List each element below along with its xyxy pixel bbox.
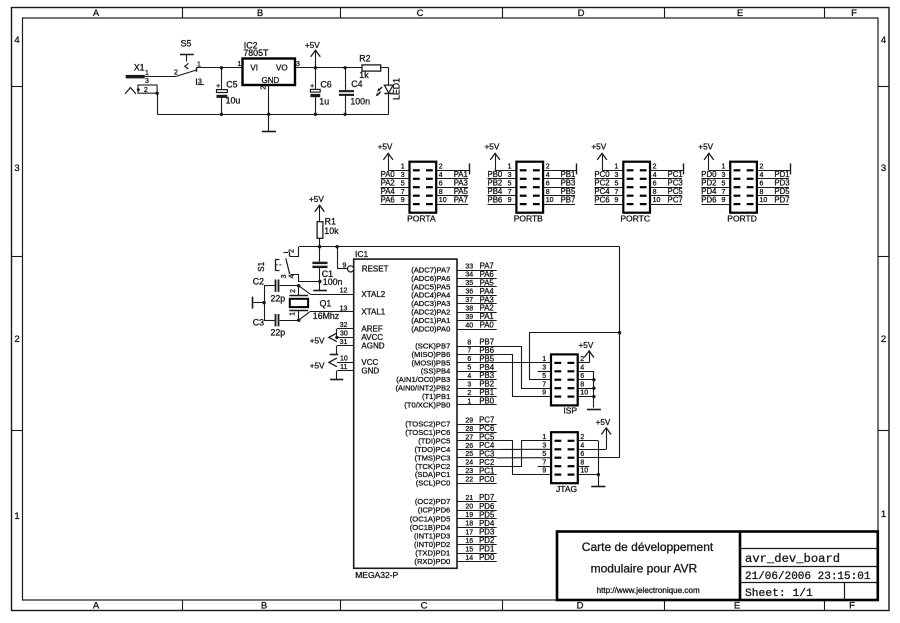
svg-text:2: 2	[14, 334, 19, 345]
svg-text:6: 6	[546, 180, 550, 187]
svg-text:PB7: PB7	[561, 196, 576, 205]
svg-text:5: 5	[467, 365, 471, 372]
svg-text:6: 6	[653, 180, 657, 187]
svg-text:7: 7	[508, 189, 512, 196]
svg-text:LED1: LED1	[392, 78, 402, 100]
svg-text:8: 8	[760, 189, 764, 196]
svg-text:F: F	[849, 601, 855, 612]
svg-text:10k: 10k	[324, 226, 339, 236]
svg-text:+5V: +5V	[485, 143, 500, 152]
svg-text:5: 5	[721, 180, 725, 187]
svg-text:4: 4	[439, 172, 443, 179]
svg-text:C6: C6	[320, 80, 331, 90]
svg-text:+5V: +5V	[579, 341, 594, 350]
svg-text:1: 1	[881, 509, 886, 520]
svg-text:3: 3	[542, 364, 546, 371]
svg-text:XTAL1: XTAL1	[361, 308, 385, 317]
svg-text:A: A	[93, 8, 100, 19]
svg-text:100n: 100n	[350, 97, 370, 107]
svg-text:2: 2	[546, 163, 550, 170]
svg-text:34: 34	[465, 272, 473, 279]
svg-text:21: 21	[465, 495, 473, 502]
svg-text:40: 40	[465, 322, 473, 329]
svg-text:21/06/2006 23:15:01: 21/06/2006 23:15:01	[745, 571, 871, 583]
svg-text:C: C	[417, 8, 424, 19]
svg-text:7805T: 7805T	[243, 48, 269, 58]
svg-text:Q1: Q1	[320, 299, 332, 309]
svg-text:10: 10	[580, 468, 588, 475]
svg-text:9: 9	[615, 197, 619, 204]
svg-text:11: 11	[340, 364, 347, 371]
svg-text:GND: GND	[262, 76, 280, 85]
svg-text:+5V: +5V	[310, 361, 325, 370]
svg-text:+: +	[216, 83, 220, 90]
svg-text:22p: 22p	[271, 294, 286, 304]
svg-text:modulaire pour AVR: modulaire pour AVR	[591, 561, 698, 575]
svg-text:4: 4	[881, 35, 886, 46]
svg-text:1: 1	[467, 398, 471, 405]
svg-text:7: 7	[401, 189, 405, 196]
svg-text:3: 3	[467, 382, 471, 389]
svg-text:4: 4	[653, 172, 657, 179]
svg-text:13: 13	[340, 305, 348, 312]
svg-text:8: 8	[439, 189, 443, 196]
svg-text:29: 29	[465, 417, 473, 424]
svg-text:20: 20	[465, 504, 473, 511]
svg-text:S5: S5	[181, 39, 192, 49]
svg-text:1: 1	[615, 163, 619, 170]
svg-text:1: 1	[542, 434, 546, 441]
svg-text:3: 3	[615, 172, 619, 179]
svg-text:PC0: PC0	[479, 475, 495, 484]
svg-text:3: 3	[881, 163, 886, 174]
svg-text:1: 1	[14, 511, 19, 522]
svg-text:http://www.jelectronique.com: http://www.jelectronique.com	[597, 586, 700, 595]
svg-text:Sheet: 1/1: Sheet: 1/1	[745, 588, 813, 600]
svg-text:7: 7	[615, 189, 619, 196]
svg-text:10: 10	[439, 197, 447, 204]
svg-text:PC6: PC6	[594, 196, 609, 205]
svg-text:1u: 1u	[319, 97, 329, 107]
svg-text:25: 25	[465, 451, 473, 458]
svg-text:2: 2	[760, 163, 764, 170]
svg-text:17: 17	[465, 529, 473, 536]
svg-text:3: 3	[401, 172, 405, 179]
svg-text:PB6: PB6	[488, 196, 503, 205]
svg-text:PA0: PA0	[480, 321, 495, 330]
svg-text:A: A	[93, 601, 100, 612]
svg-text:AGND: AGND	[361, 342, 384, 351]
svg-text:4: 4	[580, 364, 584, 371]
svg-text:S1: S1	[257, 261, 266, 271]
svg-text:8: 8	[580, 381, 584, 388]
svg-text:+5V: +5V	[591, 143, 606, 152]
svg-text:7: 7	[542, 459, 546, 466]
svg-text:PD0: PD0	[479, 553, 495, 562]
svg-text:9: 9	[401, 197, 405, 204]
svg-text:F: F	[851, 8, 857, 19]
svg-text:C2: C2	[253, 277, 264, 287]
svg-text:+5V: +5V	[309, 195, 324, 204]
svg-text:1k: 1k	[359, 70, 369, 80]
svg-text:7: 7	[542, 381, 546, 388]
svg-text:VI: VI	[250, 63, 258, 72]
svg-text:MEGA32-P: MEGA32-P	[355, 570, 398, 580]
svg-text:PD7: PD7	[774, 196, 789, 205]
svg-text:3: 3	[281, 274, 288, 278]
svg-text:9: 9	[721, 197, 725, 204]
svg-text:10: 10	[760, 197, 768, 204]
svg-text:18: 18	[465, 521, 473, 528]
svg-text:+5V: +5V	[310, 336, 325, 345]
svg-text:2: 2	[439, 163, 443, 170]
svg-text:8: 8	[653, 189, 657, 196]
svg-text:PC7: PC7	[668, 196, 683, 205]
svg-text:10: 10	[340, 356, 348, 363]
svg-text:C5: C5	[226, 80, 237, 90]
svg-text:16: 16	[465, 538, 473, 545]
svg-text:(ADC0)PA0: (ADC0)PA0	[411, 325, 450, 334]
svg-text:PORTD: PORTD	[727, 213, 757, 223]
svg-text:4: 4	[580, 442, 584, 449]
svg-text:JTAG: JTAG	[556, 484, 577, 494]
svg-text:PORTA: PORTA	[407, 213, 436, 223]
svg-text:8: 8	[546, 189, 550, 196]
svg-text:31: 31	[340, 339, 348, 346]
svg-text:(T0/XCK)PB0: (T0/XCK)PB0	[404, 400, 450, 409]
svg-text:10: 10	[546, 197, 554, 204]
svg-text:D: D	[578, 8, 585, 19]
svg-text:B: B	[261, 601, 267, 612]
svg-text:27: 27	[465, 434, 473, 441]
svg-text:5: 5	[542, 451, 546, 458]
svg-text:9: 9	[542, 468, 546, 475]
svg-text:2: 2	[580, 434, 584, 441]
svg-text:9: 9	[343, 262, 347, 269]
svg-text:6: 6	[467, 356, 471, 363]
svg-text:1: 1	[508, 163, 512, 170]
svg-text:24: 24	[465, 460, 473, 467]
svg-text:6: 6	[439, 180, 443, 187]
svg-text:16Mhz: 16Mhz	[313, 311, 339, 321]
svg-text:PA7: PA7	[454, 196, 468, 205]
svg-text:R2: R2	[359, 54, 370, 64]
svg-text:+5V: +5V	[596, 418, 611, 427]
svg-text:(SCL)PC0: (SCL)PC0	[416, 479, 451, 488]
svg-text:5: 5	[508, 180, 512, 187]
svg-text:+5V: +5V	[378, 143, 393, 152]
svg-text:6: 6	[580, 373, 584, 380]
svg-text:15: 15	[465, 546, 473, 553]
svg-text:3: 3	[145, 78, 149, 85]
svg-text:100n: 100n	[323, 277, 343, 287]
svg-text:3: 3	[14, 163, 19, 174]
svg-text:10: 10	[580, 390, 588, 397]
svg-text:5: 5	[401, 180, 405, 187]
svg-text:(RXD)PD0: (RXD)PD0	[414, 557, 450, 566]
svg-text:14: 14	[465, 555, 473, 562]
svg-text:PD6: PD6	[701, 196, 716, 205]
svg-text:1: 1	[290, 312, 297, 316]
svg-text:33: 33	[465, 263, 473, 270]
svg-text:9: 9	[542, 390, 546, 397]
svg-text:10u: 10u	[226, 95, 241, 105]
svg-text:1: 1	[401, 163, 405, 170]
svg-text:4: 4	[467, 373, 471, 380]
svg-text:4: 4	[14, 35, 19, 46]
svg-text:X1: X1	[134, 62, 145, 72]
svg-text:6: 6	[580, 451, 584, 458]
svg-text:36: 36	[465, 289, 473, 296]
svg-text:7: 7	[467, 348, 471, 355]
svg-text:5: 5	[542, 373, 546, 380]
svg-text:9: 9	[508, 197, 512, 204]
svg-text:ISP: ISP	[563, 405, 577, 415]
svg-text:RESET: RESET	[362, 265, 389, 274]
svg-text:2: 2	[467, 390, 471, 397]
svg-text:3: 3	[508, 172, 512, 179]
svg-text:10: 10	[653, 197, 661, 204]
svg-text:6: 6	[760, 180, 764, 187]
svg-text:2: 2	[881, 334, 886, 345]
svg-text:8: 8	[580, 459, 584, 466]
svg-text:+5V: +5V	[305, 41, 320, 50]
svg-text:IC1: IC1	[355, 249, 369, 259]
svg-text:B: B	[257, 8, 263, 19]
svg-text:1: 1	[237, 61, 241, 68]
svg-text:C3: C3	[253, 318, 264, 328]
svg-text:4: 4	[760, 172, 764, 179]
svg-text:1: 1	[721, 163, 725, 170]
svg-text:2: 2	[653, 163, 657, 170]
svg-text:C4: C4	[351, 79, 362, 89]
svg-text:23: 23	[465, 468, 473, 475]
svg-text:28: 28	[465, 426, 473, 433]
svg-text:PB0: PB0	[479, 397, 494, 406]
svg-text:avr_dev_board: avr_dev_board	[745, 552, 840, 566]
svg-text:E: E	[737, 8, 743, 19]
svg-text:VO: VO	[276, 63, 288, 72]
svg-text:2: 2	[261, 86, 268, 90]
svg-text:4: 4	[546, 172, 550, 179]
svg-text:3: 3	[542, 442, 546, 449]
svg-text:26: 26	[465, 443, 473, 450]
svg-text:8: 8	[467, 339, 471, 346]
svg-text:19: 19	[465, 512, 473, 519]
svg-text:3: 3	[721, 172, 725, 179]
svg-text:22p: 22p	[271, 327, 286, 337]
svg-text:30: 30	[340, 330, 348, 337]
svg-text:12: 12	[340, 288, 348, 295]
svg-text:22: 22	[465, 477, 473, 484]
svg-text:37: 37	[465, 297, 473, 304]
svg-text:2: 2	[144, 87, 148, 94]
svg-text:XTAL2: XTAL2	[361, 290, 385, 299]
svg-text:PA6: PA6	[381, 196, 395, 205]
svg-text:+5V: +5V	[698, 143, 713, 152]
svg-text:Carte de développement: Carte de développement	[582, 540, 714, 554]
svg-text:39: 39	[465, 314, 473, 321]
svg-text:D: D	[577, 601, 584, 612]
svg-text:PORTC: PORTC	[620, 213, 650, 223]
svg-text:2: 2	[290, 289, 297, 293]
svg-text:C: C	[421, 601, 428, 612]
svg-text:7: 7	[721, 189, 725, 196]
svg-text:E: E	[734, 601, 740, 612]
svg-text:GND: GND	[361, 367, 379, 376]
svg-text:5: 5	[615, 180, 619, 187]
svg-text:35: 35	[465, 280, 473, 287]
svg-text:38: 38	[465, 306, 473, 313]
svg-text:PORTB: PORTB	[514, 213, 543, 223]
